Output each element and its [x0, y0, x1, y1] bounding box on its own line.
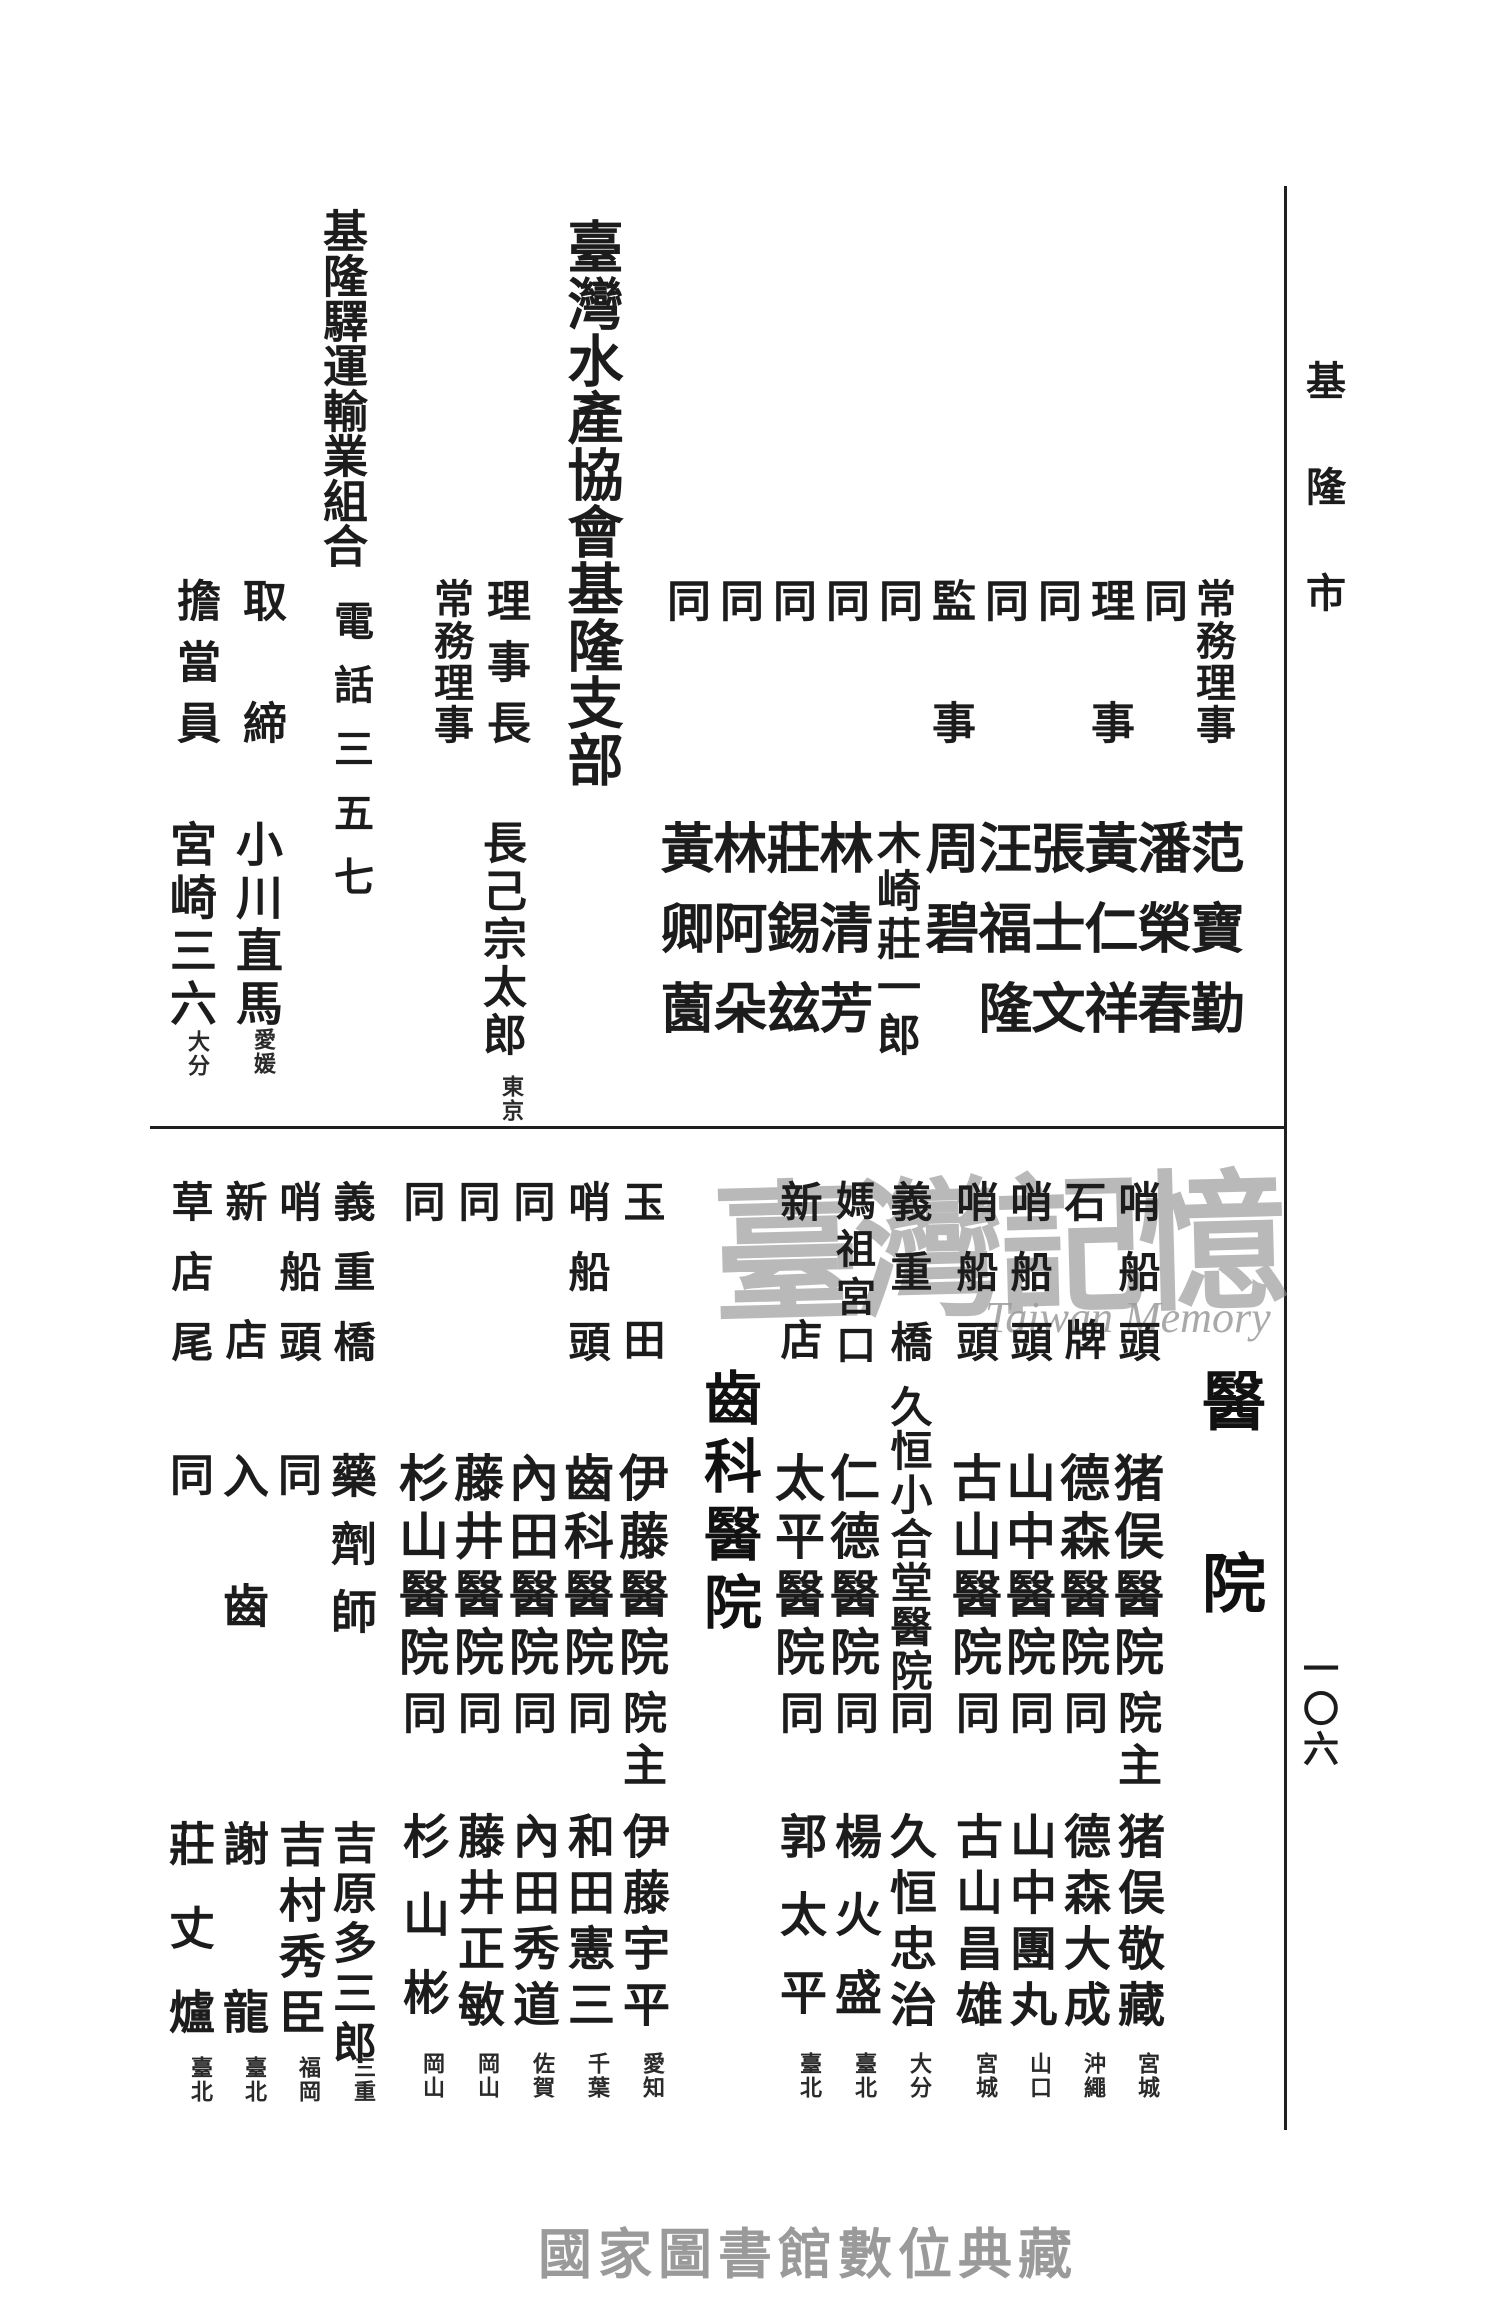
officer-name: 林阿朵 [708, 820, 762, 1060]
officer-role: 同 [980, 578, 1024, 622]
other-origin: 三重 [352, 2056, 374, 2104]
dentist-role: 同 [563, 1690, 607, 1734]
hospital-origin: 沖繩 [1082, 2052, 1104, 2100]
library-footer-caption: 國家圖書館數位典藏 [538, 2210, 1078, 2289]
officer-role: 同 [715, 578, 759, 622]
dentist-location: 同 [454, 1180, 496, 1222]
dentist-person: 伊藤宇平 [617, 1812, 664, 2036]
other-occupation: 同 [273, 1452, 317, 1496]
officer-role: 常務理事 [1192, 578, 1232, 746]
officer-name: 莊錫玆 [761, 820, 815, 1060]
dentist-clinic: 伊藤醫院 [615, 1452, 665, 1684]
hospital-name: 山中醫院 [1002, 1452, 1052, 1684]
officer-name: 小川直馬 [230, 820, 277, 1032]
dentist-location: 玉田 [619, 1180, 661, 1456]
officer-name: 木崎莊一郎 [872, 820, 916, 1060]
hospital-location: 石牌 [1060, 1180, 1102, 1456]
hospital-name: 久恒小合堂醫院 [886, 1385, 928, 1693]
hospital-role: 院主 [1113, 1690, 1157, 1794]
other-person: 謝龍 [219, 1820, 265, 2156]
hospital-name: 太平醫院 [771, 1452, 821, 1684]
officer-name: 黃卿薗 [655, 820, 709, 1060]
officer-origin: 愛媛 [252, 1028, 274, 1076]
other-location: 新店 [221, 1180, 263, 1456]
entry-title: 臺灣水產協會基隆支部 [562, 218, 618, 788]
hospital-location: 義重橋 [886, 1180, 928, 1390]
officer-name: 黃仁祥 [1079, 820, 1133, 1060]
officer-role: 同 [1033, 578, 1077, 622]
dentist-person: 內田秀道 [507, 1812, 554, 2036]
other-person: 吉村秀臣 [273, 1820, 320, 2044]
hospital-origin: 宮城 [1136, 2052, 1158, 2100]
dentist-clinic: 齒科醫院 [560, 1452, 610, 1684]
other-location: 哨船頭 [275, 1180, 317, 1390]
other-occupation: 藥劑師 [327, 1452, 373, 1656]
entry-phone: 電話三五七 [330, 600, 370, 920]
hospital-name: 猪俣醫院 [1110, 1452, 1160, 1684]
hospital-origin: 宮城 [974, 2052, 996, 2100]
dentist-clinic: 杉山醫院 [395, 1452, 445, 1684]
officer-role: 監事 [927, 578, 971, 822]
officer-name: 潘榮春 [1132, 820, 1186, 1060]
margin-city-label: 基隆市 [1302, 360, 1342, 678]
officer-role: 取締 [238, 578, 282, 822]
dentist-role: 同 [453, 1690, 497, 1734]
officer-role: 同 [768, 578, 812, 622]
dentist-location: 同 [399, 1180, 441, 1222]
dentist-clinic: 藤井醫院 [450, 1452, 500, 1684]
dentist-role: 同 [398, 1690, 442, 1734]
hospital-name: 仁德醫院 [826, 1452, 876, 1684]
hospital-location: 哨船頭 [952, 1180, 994, 1390]
officer-role: 理事長 [482, 578, 526, 761]
hospital-role: 同 [830, 1690, 874, 1734]
dentist-origin: 岡山 [476, 2052, 498, 2100]
other-location: 義重橋 [329, 1180, 371, 1390]
dentist-person: 杉山彬 [397, 1812, 444, 2046]
hospital-person: 古山昌雄 [950, 1812, 997, 2036]
officer-role: 常務理事 [430, 578, 470, 746]
hospital-role: 同 [1005, 1690, 1049, 1734]
hospital-person: 德森大成 [1058, 1812, 1105, 2036]
other-person: 吉原多三郎 [328, 1820, 372, 2070]
section-header-hospitals: 醫院 [1196, 1368, 1260, 1732]
hospital-person: 猪俣敬藏 [1112, 1812, 1159, 2036]
hospital-origin: 臺北 [853, 2052, 875, 2100]
other-location: 草店尾 [167, 1180, 209, 1390]
section-header-dental: 齒科醫院 [698, 1368, 756, 1640]
hospital-person: 楊火盛 [829, 1812, 876, 2046]
entry-title: 基隆驛運輸業組合 [318, 208, 363, 568]
officer-origin: 大分 [186, 1030, 208, 1078]
other-origin: 臺北 [243, 2056, 265, 2104]
other-person: 莊丈爐 [165, 1820, 211, 2072]
officer-role: 同 [821, 578, 865, 622]
other-origin: 福岡 [297, 2056, 319, 2104]
officer-role: 同 [662, 578, 706, 622]
officer-name: 林清芳 [814, 820, 868, 1060]
dentist-role: 院主 [618, 1690, 662, 1794]
hospital-person: 山中團丸 [1004, 1812, 1051, 2036]
dentist-clinic: 內田醫院 [505, 1452, 555, 1684]
officer-name: 汪福隆 [973, 820, 1027, 1060]
hospital-role: 同 [775, 1690, 819, 1734]
dentist-role: 同 [508, 1690, 552, 1734]
scanned-directory-page: 基隆市 一〇六 臺灣記憶 Taiwan Memory 常務理事 范寶勤 同 潘榮… [0, 0, 1500, 2300]
dentist-origin: 岡山 [421, 2052, 443, 2100]
dentist-origin: 千葉 [586, 2052, 608, 2100]
other-occupation: 同 [165, 1452, 209, 1496]
officer-name: 長己宗太郎 [478, 820, 522, 1060]
dentist-person: 和田憲三 [562, 1812, 609, 2036]
other-origin: 臺北 [189, 2056, 211, 2104]
dentist-origin: 佐賀 [531, 2052, 553, 2100]
hospital-location: 媽祖宮口 [832, 1180, 872, 1372]
hospital-location: 哨船頭 [1006, 1180, 1048, 1390]
hospital-role: 同 [885, 1690, 929, 1734]
hospital-role: 同 [951, 1690, 995, 1734]
officer-role: 同 [874, 578, 918, 622]
officer-origin: 東京 [500, 1075, 522, 1123]
right-border-rule [1284, 186, 1287, 2130]
dentist-location: 哨船頭 [564, 1180, 606, 1390]
officer-name: 張士文 [1026, 820, 1080, 1060]
hospital-person: 郭太平 [774, 1812, 821, 2046]
officer-name: 周碧 [920, 820, 974, 980]
hospital-origin: 山口 [1028, 2052, 1050, 2100]
officer-role: 理事 [1086, 578, 1130, 822]
hospital-location: 哨船頭 [1114, 1180, 1156, 1390]
hospital-origin: 大分 [908, 2052, 930, 2100]
officer-name: 宮崎三六 [164, 820, 211, 1032]
hospital-origin: 臺北 [798, 2052, 820, 2100]
hospital-location: 新店 [776, 1180, 818, 1456]
officer-role: 同 [1139, 578, 1183, 622]
officer-name: 范寶勤 [1185, 820, 1239, 1060]
dentist-person: 藤井正敏 [452, 1812, 499, 2036]
hospital-person: 久恒忠治 [884, 1812, 931, 2036]
hospital-name: 德森醫院 [1056, 1452, 1106, 1684]
other-occupation: 入齒 [219, 1452, 265, 1712]
hospital-role: 同 [1059, 1690, 1103, 1734]
hospital-name: 古山醫院 [948, 1452, 998, 1684]
officer-role: 擔當員 [172, 578, 216, 761]
page-number: 一〇六 [1300, 1650, 1336, 1770]
dentist-origin: 愛知 [641, 2052, 663, 2100]
dentist-location: 同 [509, 1180, 551, 1222]
